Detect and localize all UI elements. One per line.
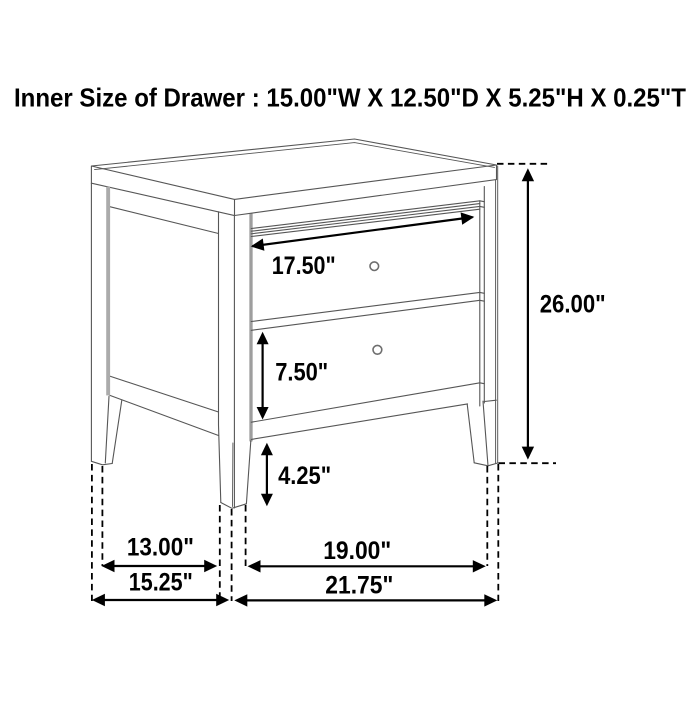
svg-text:15.25": 15.25" xyxy=(129,569,193,597)
svg-text:21.75": 21.75" xyxy=(325,572,393,600)
svg-text:Inner Size of Drawer : 15.00"W: Inner Size of Drawer : 15.00"W X 12.50"D… xyxy=(14,83,686,113)
svg-text:19.00": 19.00" xyxy=(323,537,391,565)
svg-text:17.50": 17.50" xyxy=(272,252,336,280)
svg-text:13.00": 13.00" xyxy=(127,534,194,562)
svg-text:7.50": 7.50" xyxy=(275,359,328,387)
svg-text:26.00": 26.00" xyxy=(540,290,606,318)
svg-text:4.25": 4.25" xyxy=(278,462,331,490)
